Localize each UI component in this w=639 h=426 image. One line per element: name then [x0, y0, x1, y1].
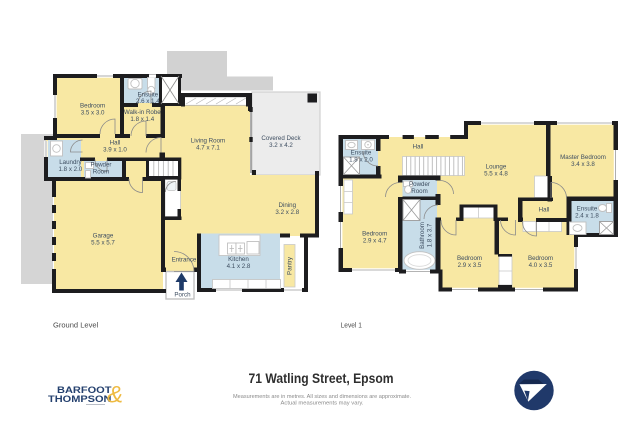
svg-text:1.8 x 2.0: 1.8 x 2.0: [349, 157, 373, 164]
svg-text:Actual measurements may vary.: Actual measurements may vary.: [281, 401, 364, 407]
svg-text:Bedroom: Bedroom: [362, 231, 387, 238]
svg-text:Entrance: Entrance: [172, 257, 197, 264]
svg-text:Measurements are in metres. Al: Measurements are in metres. All sizes an…: [233, 394, 411, 400]
svg-text:Hall: Hall: [539, 207, 550, 214]
svg-text:3.9 x 1.0: 3.9 x 1.0: [103, 147, 127, 154]
svg-text:Bedroom: Bedroom: [80, 103, 105, 110]
svg-text:Ground Level: Ground Level: [53, 321, 99, 330]
svg-text:Covered Deck: Covered Deck: [261, 135, 301, 142]
svg-text:Pantry: Pantry: [287, 256, 294, 275]
svg-text:Living Room: Living Room: [191, 138, 225, 145]
svg-text:4.0 x 3.5: 4.0 x 3.5: [529, 262, 553, 269]
svg-text:Kitchen: Kitchen: [228, 256, 249, 263]
svg-text:4.7 x 7.1: 4.7 x 7.1: [196, 145, 220, 152]
svg-text:2.9 x 3.5: 2.9 x 3.5: [458, 262, 482, 269]
svg-text:2.9 x 4.7: 2.9 x 4.7: [363, 238, 387, 245]
svg-text:Hall: Hall: [110, 140, 121, 147]
svg-text:3.2 x 4.2: 3.2 x 4.2: [269, 142, 293, 149]
svg-text:Bedroom: Bedroom: [457, 255, 482, 262]
svg-text:Lounge: Lounge: [486, 164, 507, 171]
svg-text:1.8 x 2.0: 1.8 x 2.0: [59, 166, 83, 173]
svg-text:&: &: [107, 382, 123, 409]
svg-text:2.4 x 1.8: 2.4 x 1.8: [575, 213, 599, 220]
svg-text:Laundry: Laundry: [59, 159, 82, 166]
svg-text:71 Watling Street, Epsom: 71 Watling Street, Epsom: [249, 371, 394, 386]
svg-text:Powder: Powder: [91, 162, 112, 169]
svg-text:Level 1: Level 1: [341, 321, 362, 330]
svg-text:1.8 x 1.4: 1.8 x 1.4: [130, 116, 154, 123]
svg-text:Walk-in Robe: Walk-in Robe: [124, 109, 161, 116]
svg-text:Dining: Dining: [279, 202, 297, 209]
svg-text:Room: Room: [93, 169, 110, 176]
svg-text:Garage: Garage: [93, 233, 114, 240]
svg-text:Ensuite: Ensuite: [577, 206, 598, 213]
svg-text:3.5 x 3.0: 3.5 x 3.0: [81, 110, 105, 117]
svg-text:2.6 x 1.4: 2.6 x 1.4: [136, 98, 160, 105]
svg-text:Hall: Hall: [413, 144, 424, 151]
svg-text:Ensuite: Ensuite: [351, 150, 372, 157]
svg-text:Room: Room: [411, 188, 428, 195]
svg-text:3.4 x 3.8: 3.4 x 3.8: [571, 161, 595, 168]
svg-text:3.2 x 2.8: 3.2 x 2.8: [275, 209, 299, 216]
svg-text:Porch: Porch: [174, 292, 191, 299]
svg-text:5.5 x 4.8: 5.5 x 4.8: [484, 171, 508, 178]
svg-text:4.1 x 2.8: 4.1 x 2.8: [227, 263, 251, 270]
svg-text:THOMPSON: THOMPSON: [48, 394, 112, 405]
svg-text:Powder: Powder: [409, 181, 430, 188]
svg-text:Bathroom: Bathroom: [419, 222, 426, 249]
svg-text:1.8 x 3.7: 1.8 x 3.7: [427, 223, 434, 247]
svg-text:Bedroom: Bedroom: [528, 255, 553, 262]
svg-text:5.5 x 5.7: 5.5 x 5.7: [91, 240, 115, 247]
svg-text:Master Bedroom: Master Bedroom: [560, 154, 606, 161]
